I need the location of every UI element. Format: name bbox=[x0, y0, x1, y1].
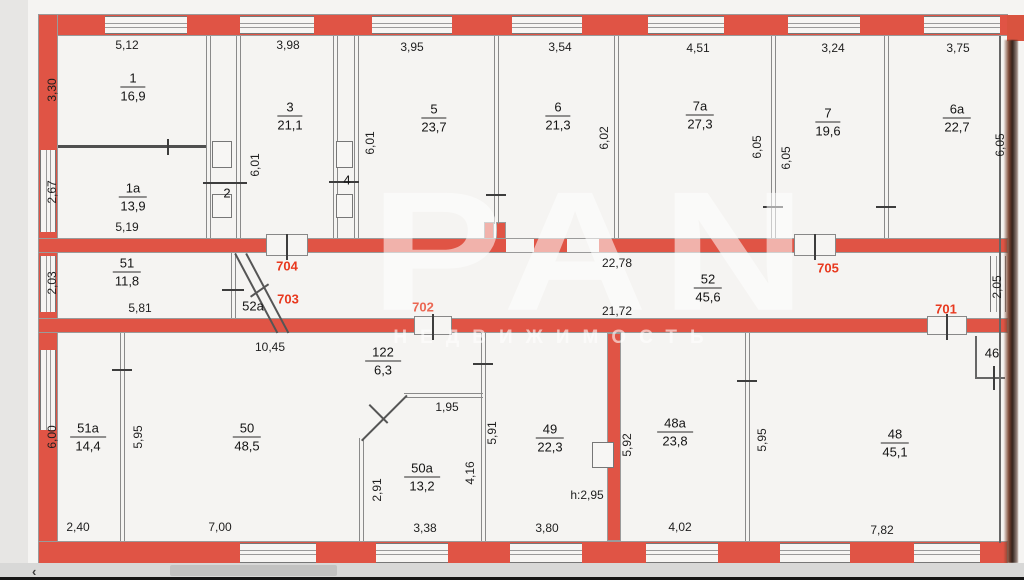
door-label-705: 705 bbox=[817, 261, 839, 276]
door-tick bbox=[993, 366, 995, 390]
dimension: 4,51 bbox=[686, 41, 709, 55]
partition-room6-7a bbox=[614, 36, 619, 238]
door-tick bbox=[286, 234, 288, 260]
partition-room2-3 bbox=[236, 36, 241, 238]
dimension: 6,05 bbox=[993, 133, 1007, 156]
height-note: h:2,95 bbox=[570, 488, 603, 502]
window bbox=[510, 543, 582, 563]
window bbox=[512, 16, 582, 34]
dimension: 3,38 bbox=[413, 521, 436, 535]
viewer-scrollbar-thumb[interactable] bbox=[170, 565, 337, 576]
room46-wall bbox=[975, 336, 977, 379]
floorplan-paper bbox=[28, 0, 1024, 563]
dimension: 5,81 bbox=[128, 301, 151, 315]
dimension: 4,16 bbox=[463, 461, 477, 484]
wall-pier bbox=[484, 222, 494, 239]
room-label-3: 321,1 bbox=[277, 100, 302, 133]
wall-corridor-bottom bbox=[38, 318, 1008, 333]
window bbox=[105, 16, 187, 34]
room-label-52: 5245,6 bbox=[694, 272, 722, 305]
door-tick bbox=[737, 380, 757, 382]
dimension: 2,05 bbox=[990, 275, 1004, 298]
dimension: 5,12 bbox=[115, 38, 138, 52]
window bbox=[240, 543, 316, 563]
door-tick bbox=[222, 289, 244, 291]
dimension: 3,80 bbox=[535, 521, 558, 535]
room-label-48: 4845,1 bbox=[881, 427, 909, 460]
window bbox=[788, 16, 860, 34]
dimension: 5,91 bbox=[485, 421, 499, 444]
dimension: 2,40 bbox=[66, 520, 89, 534]
dimension: 6,01 bbox=[363, 131, 377, 154]
door-tick bbox=[473, 363, 493, 365]
door-tick bbox=[763, 206, 783, 208]
shaft-box bbox=[336, 194, 353, 218]
room-label-51a: 51а14,4 bbox=[70, 421, 106, 454]
dimension: 2,03 bbox=[45, 271, 59, 294]
door-opening bbox=[567, 239, 599, 252]
dimension: 1,95 bbox=[435, 400, 458, 414]
dimension: 7,82 bbox=[870, 523, 893, 537]
window bbox=[646, 543, 718, 563]
room-label-7a: 7а27,3 bbox=[686, 99, 714, 132]
room-label-6: 621,3 bbox=[545, 100, 570, 133]
scan-page-edge bbox=[1004, 40, 1018, 563]
room-label-46: 46 bbox=[985, 346, 999, 361]
dimension: 6,01 bbox=[248, 153, 262, 176]
window bbox=[780, 543, 850, 563]
window bbox=[648, 16, 724, 34]
door-tick bbox=[946, 314, 948, 340]
dimension: 22,78 bbox=[602, 256, 632, 270]
window bbox=[924, 16, 1000, 34]
dimension: 4,02 bbox=[668, 520, 691, 534]
partition-room48a-48 bbox=[745, 333, 750, 541]
door-tick bbox=[486, 194, 506, 196]
door-opening bbox=[506, 239, 534, 252]
window bbox=[376, 543, 448, 563]
room-label-50a: 50а13,2 bbox=[404, 461, 440, 494]
door-tick bbox=[167, 139, 169, 155]
partition-room51-52a bbox=[231, 253, 236, 318]
dimension: 7,00 bbox=[208, 520, 231, 534]
dimension: 5,95 bbox=[131, 425, 145, 448]
door-label-701: 701 bbox=[935, 302, 957, 317]
wall-room49-48a bbox=[607, 333, 621, 541]
door-tick bbox=[432, 314, 434, 340]
dimension: 3,54 bbox=[548, 40, 571, 54]
niche-room49 bbox=[592, 442, 614, 468]
partition-room122-50a bbox=[404, 393, 483, 398]
room-label-52a: 52а bbox=[242, 299, 264, 314]
room-label-122: 1226,3 bbox=[365, 345, 401, 378]
dimension: 2,67 bbox=[45, 180, 59, 203]
page-left-margin bbox=[0, 0, 29, 563]
door-tick bbox=[814, 234, 816, 260]
dimension: 3,95 bbox=[400, 40, 423, 54]
image-viewer: PAN НЕДВИЖИМОСТЬ 116,9 1а13,9 2 321,1 4 … bbox=[0, 0, 1024, 580]
back-chevron-icon[interactable]: ‹ bbox=[32, 564, 36, 579]
room-label-1a: 1а13,9 bbox=[119, 181, 147, 214]
dimension: 6,05 bbox=[750, 135, 764, 158]
dimension: 2,91 bbox=[370, 478, 384, 501]
door-tick bbox=[112, 369, 132, 371]
room-label-50: 5048,5 bbox=[233, 421, 261, 454]
partition-room1-1a bbox=[58, 145, 206, 148]
partition-room50-50a bbox=[359, 438, 364, 541]
room-label-6a: 6а22,7 bbox=[943, 102, 971, 135]
dimension: 6,00 bbox=[45, 425, 59, 448]
dimension: 5,19 bbox=[115, 220, 138, 234]
room-label-49: 4922,3 bbox=[536, 422, 564, 455]
scan-artifact bbox=[1007, 15, 1024, 41]
dimension: 3,98 bbox=[276, 38, 299, 52]
viewer-scrollbar-track[interactable] bbox=[0, 563, 1024, 577]
window bbox=[240, 16, 314, 34]
door-label-704: 704 bbox=[276, 259, 298, 274]
room-label-7: 719,6 bbox=[815, 106, 840, 139]
shaft-box bbox=[336, 141, 353, 168]
wall-pier bbox=[496, 222, 506, 239]
partition-room1-2 bbox=[206, 36, 211, 238]
dimension: 6,05 bbox=[779, 146, 793, 169]
dimension: 5,95 bbox=[755, 428, 769, 451]
shaft-box bbox=[212, 141, 232, 168]
door-tick bbox=[203, 182, 247, 184]
dimension: 10,45 bbox=[255, 340, 285, 354]
window bbox=[40, 350, 56, 430]
room-label-2: 2 bbox=[223, 186, 230, 201]
room-label-5: 523,7 bbox=[421, 102, 446, 135]
window bbox=[914, 543, 980, 563]
dimension: 3,75 bbox=[946, 41, 969, 55]
dimension: 21,72 bbox=[602, 304, 632, 318]
partition-room4-5 bbox=[354, 36, 359, 238]
room-label-51: 5111,8 bbox=[113, 256, 141, 289]
door-label-703: 703 bbox=[277, 292, 299, 307]
door-label-702: 702 bbox=[412, 300, 434, 315]
room-label-1: 116,9 bbox=[120, 71, 145, 104]
room-label-48a: 48а23,8 bbox=[657, 416, 693, 449]
dimension: 5,92 bbox=[620, 433, 634, 456]
door-tick bbox=[876, 206, 896, 208]
partition-room51a-50 bbox=[120, 333, 125, 541]
window bbox=[372, 16, 452, 34]
dimension: 6,02 bbox=[597, 126, 611, 149]
dimension: 3,24 bbox=[821, 41, 844, 55]
dimension: 3,30 bbox=[45, 78, 59, 101]
room-label-4: 4 bbox=[343, 173, 350, 188]
